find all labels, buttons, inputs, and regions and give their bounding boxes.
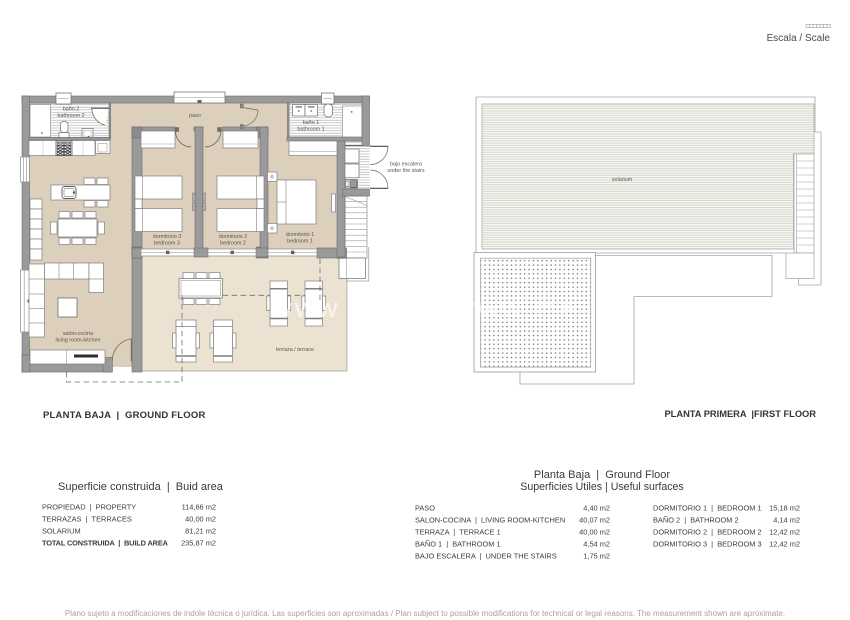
svg-text:bajo escalera: bajo escalera xyxy=(390,162,422,168)
svg-text:terraza / terrace: terraza / terrace xyxy=(276,347,314,353)
svg-text:TERRAZA | TERRACE 1: TERRAZA | TERRACE 1 xyxy=(415,528,501,537)
svg-text:baño 1: baño 1 xyxy=(303,120,320,126)
svg-text:DORMITORIO 2 | BEDROOM 2: DORMITORIO 2 | BEDROOM 2 xyxy=(653,528,762,537)
svg-text:PASO: PASO xyxy=(415,504,435,513)
svg-text:TERRAZAS | TERRACES: TERRAZAS | TERRACES xyxy=(42,515,132,524)
svg-text:Superficies Utiles | Useful su: Superficies Utiles | Useful surfaces xyxy=(520,481,683,493)
svg-text:paso: paso xyxy=(189,113,201,119)
svg-text:PLANTA PRIMERA |FIRST FLOOR: PLANTA PRIMERA |FIRST FLOOR xyxy=(664,409,816,419)
svg-text:bedroom 3: bedroom 3 xyxy=(154,241,180,247)
svg-text:salon-cocina: salon-cocina xyxy=(63,331,93,337)
svg-text:Plano sujeto a modificaciones: Plano sujeto a modificaciones de indole … xyxy=(65,609,785,618)
svg-text:1,75 m2: 1,75 m2 xyxy=(583,552,610,561)
svg-text:SALON-COCINA | LIVING ROOM-K: SALON-COCINA | LIVING ROOM-KITCHEN xyxy=(415,516,565,525)
svg-text:235,87 m2: 235,87 m2 xyxy=(181,539,216,548)
svg-text:PROPIEDAD | PROPERTY: PROPIEDAD | PROPERTY xyxy=(42,503,136,512)
svg-text:40,00 m2: 40,00 m2 xyxy=(185,515,216,524)
svg-text:4,40 m2: 4,40 m2 xyxy=(583,504,610,513)
svg-text:SOLARIUM: SOLARIUM xyxy=(42,527,81,536)
svg-text:Superficie construida | Buid: Superficie construida | Buid area xyxy=(58,481,224,493)
svg-text:114,66 m2: 114,66 m2 xyxy=(182,503,216,512)
svg-text:15,18 m2: 15,18 m2 xyxy=(769,504,800,513)
svg-text:12,42 m2: 12,42 m2 xyxy=(769,540,800,549)
svg-text:dormitorio 2: dormitorio 2 xyxy=(219,234,247,240)
svg-text:Planta Baja | Ground Floor: Planta Baja | Ground Floor xyxy=(534,469,670,481)
svg-text:solarium: solarium xyxy=(612,177,633,183)
svg-text:PLANTA BAJA | GROUND FLOOR: PLANTA BAJA | GROUND FLOOR xyxy=(43,410,206,421)
svg-text:dormitorio 1: dormitorio 1 xyxy=(286,232,314,238)
svg-text:12,42 m2: 12,42 m2 xyxy=(769,528,800,537)
svg-text:81,21 m2: 81,21 m2 xyxy=(185,527,216,536)
svg-text:BAÑO 1 | BATHROOM 1: BAÑO 1 | BATHROOM 1 xyxy=(415,540,501,549)
svg-text:DORMITORIO 3 | BEDROOM 3: DORMITORIO 3 | BEDROOM 3 xyxy=(653,540,762,549)
svg-text:Escala / Scale: Escala / Scale xyxy=(767,33,831,44)
svg-text:BAÑO 2 | BATHROOM 2: BAÑO 2 | BATHROOM 2 xyxy=(653,516,739,525)
svg-text:DORMITORIO 1 | BEDROOM 1: DORMITORIO 1 | BEDROOM 1 xyxy=(653,504,762,513)
svg-text:TOTAL CONSTRUIDA | BUILD ARE: TOTAL CONSTRUIDA | BUILD AREA xyxy=(42,539,169,548)
svg-text:4,54 m2: 4,54 m2 xyxy=(583,540,610,549)
svg-text:bathroom 2: bathroom 2 xyxy=(57,113,84,119)
svg-text:4,14 m2: 4,14 m2 xyxy=(773,516,800,525)
svg-text:bedroom 2: bedroom 2 xyxy=(220,241,246,247)
svg-text:living room-kitchen: living room-kitchen xyxy=(56,338,101,344)
svg-text:www.me: www.me xyxy=(454,293,578,323)
svg-text:baño 2: baño 2 xyxy=(63,107,80,113)
svg-text:www: www xyxy=(271,293,341,323)
svg-text:under the stairs: under the stairs xyxy=(387,168,424,174)
svg-text:40,07 m2: 40,07 m2 xyxy=(579,516,610,525)
svg-text:bedroom 1: bedroom 1 xyxy=(287,239,313,245)
svg-text:BAJO ESCALERA | UNDER THE ST: BAJO ESCALERA | UNDER THE STAIRS xyxy=(415,552,557,561)
svg-text:40,00 m2: 40,00 m2 xyxy=(579,528,610,537)
svg-text:bathroom 1: bathroom 1 xyxy=(297,127,324,133)
svg-text:dormitorio 3: dormitorio 3 xyxy=(153,234,181,240)
